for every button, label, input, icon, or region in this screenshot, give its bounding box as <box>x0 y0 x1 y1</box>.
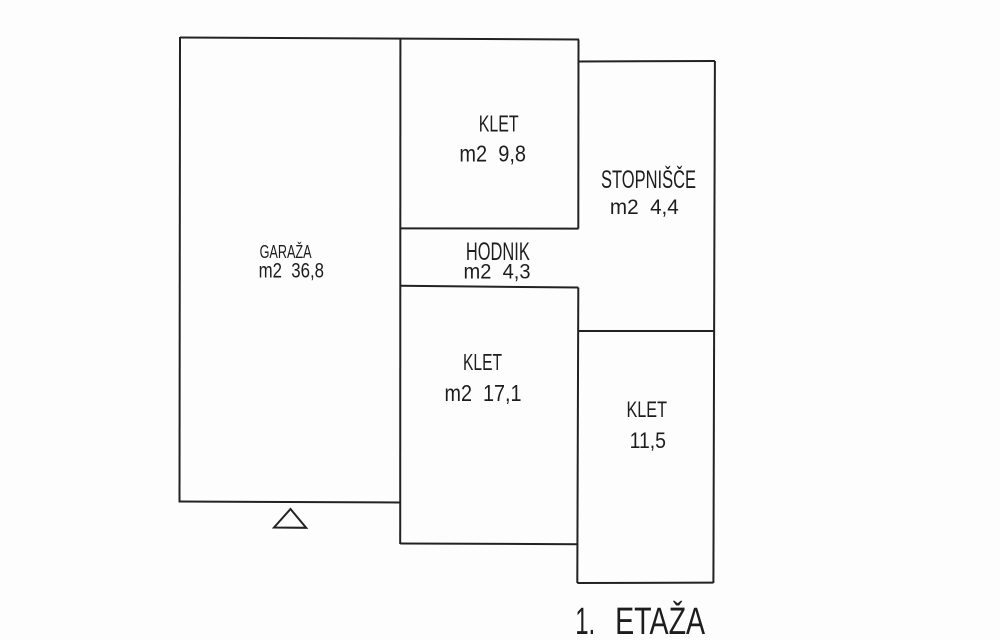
svg-text:KLET: KLET <box>627 397 668 422</box>
svg-text:STOPNIŠČE: STOPNIŠČE <box>601 166 696 194</box>
svg-text:m2 36,8: m2 36,8 <box>259 258 324 282</box>
svg-text:KLET: KLET <box>479 111 519 137</box>
svg-text:11,5: 11,5 <box>630 428 666 453</box>
svg-text:1.: 1. <box>575 600 595 640</box>
svg-text:ETAŽA: ETAŽA <box>615 600 705 640</box>
svg-text:m2 17,1: m2 17,1 <box>445 380 522 406</box>
svg-text:KLET: KLET <box>463 349 502 375</box>
svg-text:m2 4,3: m2 4,3 <box>464 260 531 284</box>
svg-text:m2 9,8: m2 9,8 <box>459 141 526 167</box>
svg-text:m2 4,4: m2 4,4 <box>610 196 679 219</box>
